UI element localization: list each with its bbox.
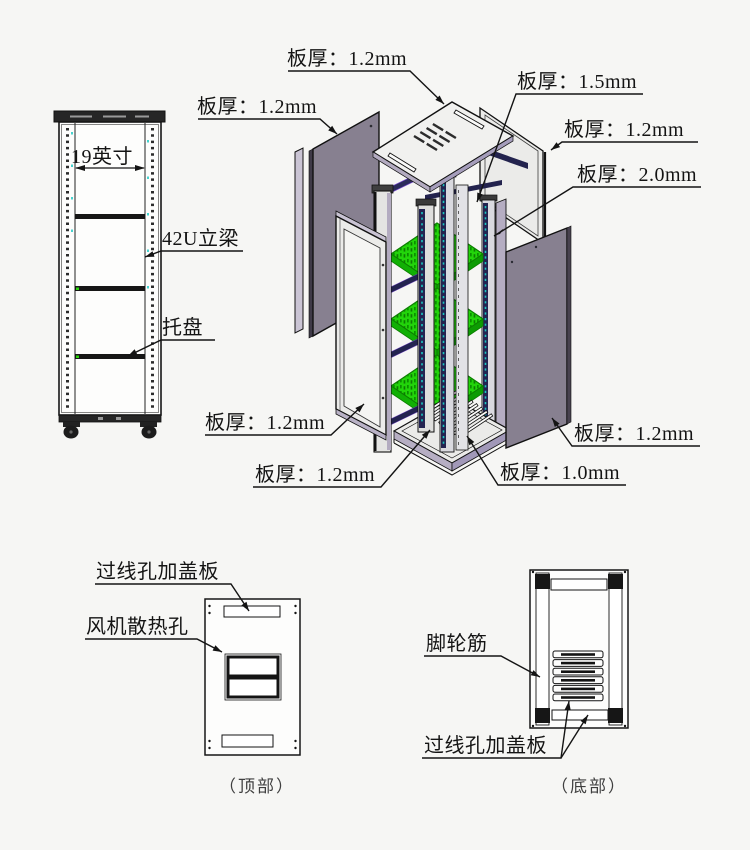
- middle-rail: [456, 185, 468, 450]
- thickness-label-frame: 板厚：1.5mm: [517, 71, 637, 94]
- bottom-view-bottom-slot: [552, 710, 608, 720]
- top-view-cable-slot: [224, 606, 280, 617]
- thickness-label-bottom-cover: 板厚：1.0mm: [500, 462, 620, 485]
- technical-diagram-page: 板厚：1.2mm 板厚：1.2mm 板厚：1.5mm 板厚：1.2mm 板厚：2…: [0, 0, 750, 850]
- thickness-label-base-frame: 板厚：1.2mm: [255, 464, 375, 487]
- bottom-view-right-caster-rib: [609, 573, 622, 725]
- top-view-caption: （顶部）: [219, 777, 295, 797]
- thickness-label-left-side-panel: 板厚：1.2mm: [197, 96, 317, 119]
- thickness-label-top-cover: 板厚：1.2mm: [287, 48, 407, 71]
- rear-right-post: [496, 199, 506, 441]
- top-plate-view-drawing: [205, 599, 300, 755]
- bottom-view-caster-rib-label: 脚轮筋: [426, 633, 488, 656]
- right-side-panel: [506, 226, 571, 448]
- front-left-mounting-rail: [416, 199, 436, 432]
- front-view-tray-2: [75, 286, 145, 291]
- thickness-label-front-door: 板厚：1.2mm: [205, 412, 325, 435]
- top-view-fan-hole-1: [228, 657, 278, 676]
- bottom-view-left-caster-rib: [536, 573, 549, 725]
- front-view-base-bar: [59, 415, 161, 422]
- front-view-tray-1: [75, 214, 145, 219]
- thickness-label-back-panel: 板厚：1.2mm: [564, 119, 684, 142]
- caster-wheels: [63, 422, 157, 439]
- front-view-beam-label: 42U立梁: [162, 228, 239, 251]
- bottom-view-cable-cover-label: 过线孔加盖板: [424, 735, 547, 758]
- thickness-label-right-side-panel: 板厚：1.2mm: [574, 423, 694, 446]
- top-view-fan-hole-2: [228, 678, 278, 697]
- bottom-plate-view-drawing: [530, 570, 628, 728]
- shelf-trays: [391, 223, 483, 424]
- front-view-tray-label: 托盘: [162, 317, 203, 340]
- rear-mounting-rail: [480, 195, 497, 440]
- bottom-view-top-slot: [551, 579, 607, 590]
- bottom-view-caption: （底部）: [551, 777, 627, 797]
- top-view-cable-cover-label: 过线孔加盖板: [96, 561, 219, 584]
- rear-left-trim-strip: [295, 148, 303, 333]
- top-view-cable-slot: [222, 735, 273, 747]
- exploded-view-drawing: [295, 102, 571, 475]
- front-view-width-label: 19英寸: [71, 146, 133, 169]
- top-view-fan-vent-label: 风机散热孔: [86, 616, 189, 639]
- thickness-label-vertical-beam: 板厚：2.0mm: [577, 164, 697, 187]
- front-right-mounting-rail: [438, 170, 456, 452]
